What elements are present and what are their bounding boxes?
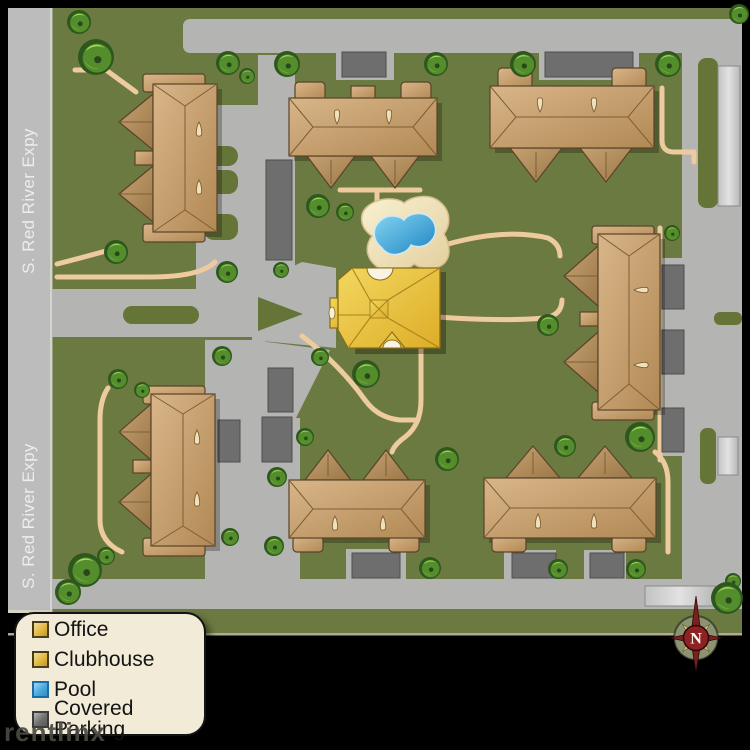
covered-parking xyxy=(266,160,292,260)
tree-icon xyxy=(108,369,128,389)
legend-item-office: Office xyxy=(32,616,204,642)
tree-icon xyxy=(625,422,655,452)
tree-icon xyxy=(78,39,114,75)
tree-icon xyxy=(664,225,680,241)
tree-icon xyxy=(273,262,289,278)
tree-icon xyxy=(267,467,287,487)
street-label-bottom: S. Red River Expy xyxy=(19,436,41,596)
compass-north-label: N xyxy=(690,631,702,648)
road-top xyxy=(183,19,742,53)
tree-icon xyxy=(274,51,300,77)
tree-icon xyxy=(311,348,329,366)
covered-parking xyxy=(662,330,684,374)
watermark-logo: rentlinx xyxy=(4,717,106,748)
tree-icon xyxy=(221,528,239,546)
tree-icon xyxy=(510,51,536,77)
covered-parking xyxy=(662,408,684,452)
covered-parking xyxy=(352,553,400,578)
office-color-swatch xyxy=(32,621,49,638)
pool-color-swatch xyxy=(32,681,49,698)
street-label-top: S. Red River Expy xyxy=(19,121,41,281)
tree-icon xyxy=(537,314,559,336)
tree-icon xyxy=(306,194,330,218)
tree-icon xyxy=(729,4,749,24)
tree-icon xyxy=(435,447,459,471)
tree-icon xyxy=(216,51,240,75)
legend-label: Clubhouse xyxy=(54,649,154,670)
tree-icon xyxy=(239,68,255,84)
road-bottom xyxy=(52,579,742,609)
covered-parking xyxy=(268,368,293,412)
tree-icon xyxy=(548,559,568,579)
covered-parking xyxy=(590,553,624,578)
covered-parking xyxy=(662,265,684,309)
carport-roof xyxy=(718,437,738,475)
tree-icon xyxy=(264,536,284,556)
tree-icon xyxy=(711,582,743,614)
tree-icon xyxy=(655,51,681,77)
covered-parking xyxy=(218,420,240,462)
covered-parking xyxy=(342,52,386,77)
tree-icon xyxy=(424,52,448,76)
carport-roof xyxy=(645,586,715,606)
office-clubhouse-building xyxy=(329,268,446,354)
tree-icon xyxy=(296,428,314,446)
tree-icon xyxy=(336,203,354,221)
clubhouse-color-swatch xyxy=(32,651,49,668)
legend-label: Office xyxy=(54,619,108,640)
tree-icon xyxy=(216,261,238,283)
tree-icon xyxy=(626,559,646,579)
tree-icon xyxy=(67,10,91,34)
tree-icon xyxy=(212,346,232,366)
pool-area xyxy=(362,196,449,272)
legend-item-clubhouse: Clubhouse xyxy=(32,646,204,672)
tree-icon xyxy=(104,240,128,264)
tree-icon xyxy=(554,435,576,457)
carport-roof xyxy=(718,66,740,206)
site-map: N S. Red River Expy S. Red River Expy Of… xyxy=(0,0,750,750)
tree-icon xyxy=(419,557,441,579)
tree-icon xyxy=(134,382,150,398)
tree-icon xyxy=(352,360,380,388)
covered-parking xyxy=(262,417,292,462)
tree-icon xyxy=(55,579,81,605)
